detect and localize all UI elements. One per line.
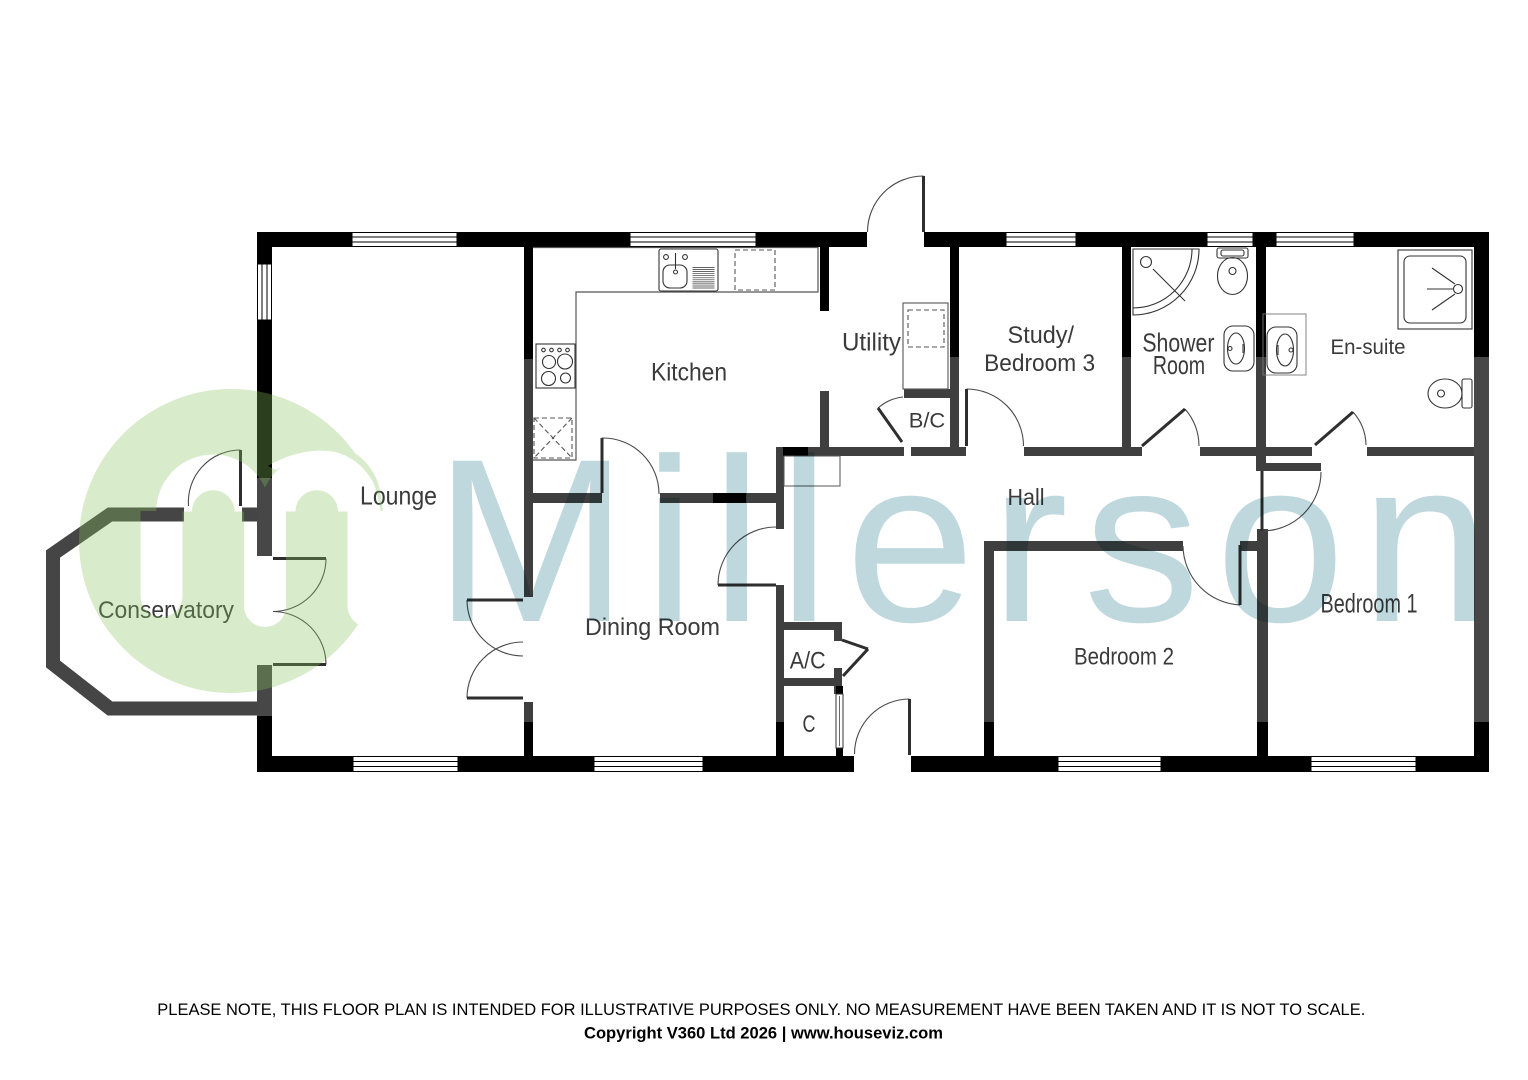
svg-text:C: C: [803, 711, 816, 738]
svg-text:Utility: Utility: [842, 329, 901, 357]
svg-text:PLEASE NOTE, THIS FLOOR PLAN I: PLEASE NOTE, THIS FLOOR PLAN IS INTENDED…: [157, 1000, 1365, 1019]
svg-text:Study/: Study/: [1008, 322, 1075, 349]
svg-text:Millerson: Millerson: [434, 411, 1506, 671]
svg-text:Copyright V360 Ltd 2026 | www.: Copyright V360 Ltd 2026 | www.houseviz.c…: [584, 1024, 943, 1043]
svg-text:En-suite: En-suite: [1331, 335, 1406, 359]
svg-text:Bedroom 3: Bedroom 3: [984, 350, 1095, 377]
svg-text:Kitchen: Kitchen: [651, 359, 727, 387]
svg-text:Room: Room: [1153, 350, 1205, 380]
